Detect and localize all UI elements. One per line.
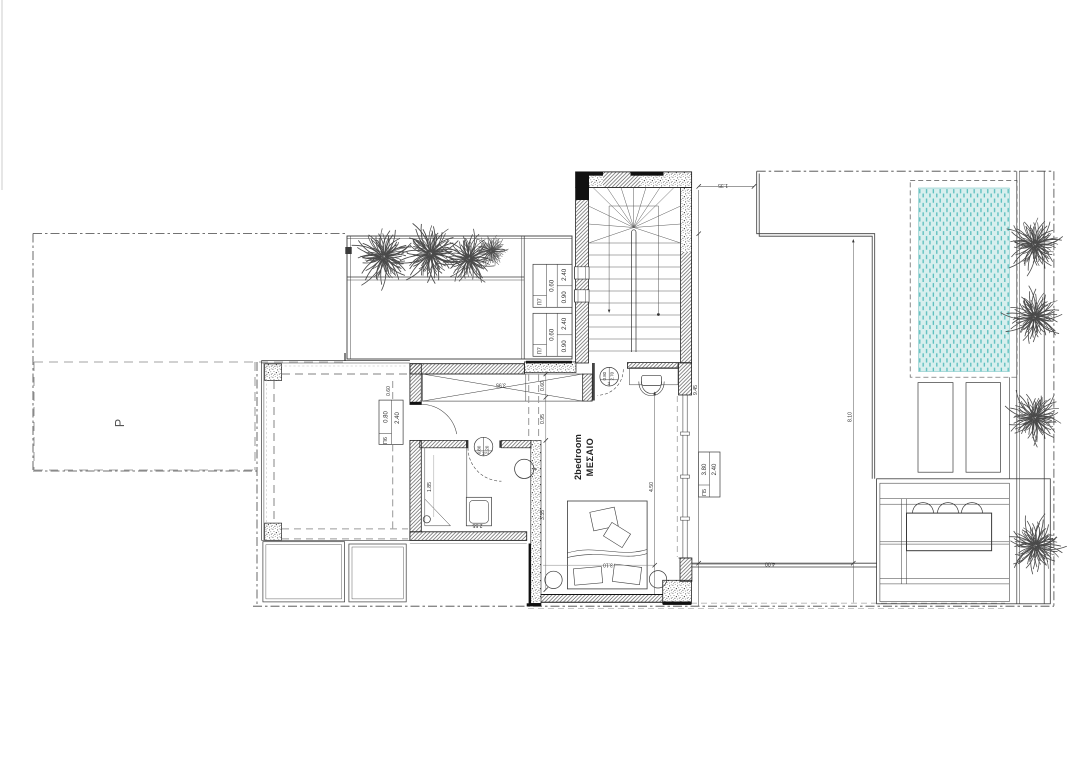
svg-text:2: 2 [482,451,485,456]
svg-text:2.40: 2.40 [561,317,568,330]
svg-text:0.90: 0.90 [561,291,568,304]
svg-text:1.85: 1.85 [427,482,433,492]
svg-text:9.45: 9.45 [693,385,699,395]
svg-text:2.40: 2.40 [561,268,568,281]
svg-text:P: P [113,419,127,427]
svg-text:0.80: 0.80 [602,371,607,380]
svg-text:3.95: 3.95 [496,381,506,387]
svg-text:2bedroom: 2bedroom [573,434,583,480]
svg-text:3.10: 3.10 [603,562,613,568]
svg-text:3.80: 3.80 [702,463,708,475]
svg-text:2.20: 2.20 [484,445,489,454]
svg-text:Π7: Π7 [538,347,544,354]
svg-text:0.60: 0.60 [549,279,556,292]
svg-text:2.55: 2.55 [472,522,482,528]
svg-text:Π7: Π7 [538,298,544,305]
svg-text:Π6: Π6 [383,437,389,444]
svg-text:1.35: 1.35 [718,182,728,188]
svg-text:0.80: 0.80 [383,411,389,423]
svg-text:2.40: 2.40 [395,412,401,424]
svg-text:0.60: 0.60 [549,328,556,341]
svg-text:0.80: 0.80 [477,445,482,454]
svg-text:0.90: 0.90 [561,340,568,353]
svg-text:0.60: 0.60 [540,381,546,391]
svg-text:8.10: 8.10 [848,412,854,422]
svg-text:Π5: Π5 [702,489,708,496]
svg-text:2.40: 2.40 [712,463,718,475]
svg-text:3: 3 [607,381,610,387]
svg-text:0.60: 0.60 [386,386,392,396]
svg-text:0.95: 0.95 [540,414,546,424]
svg-text:4.00: 4.00 [765,560,775,566]
svg-text:ΜΕΣΑΙΟ: ΜΕΣΑΙΟ [585,438,595,477]
svg-text:2.70: 2.70 [609,371,614,380]
svg-text:4.50: 4.50 [649,482,655,492]
